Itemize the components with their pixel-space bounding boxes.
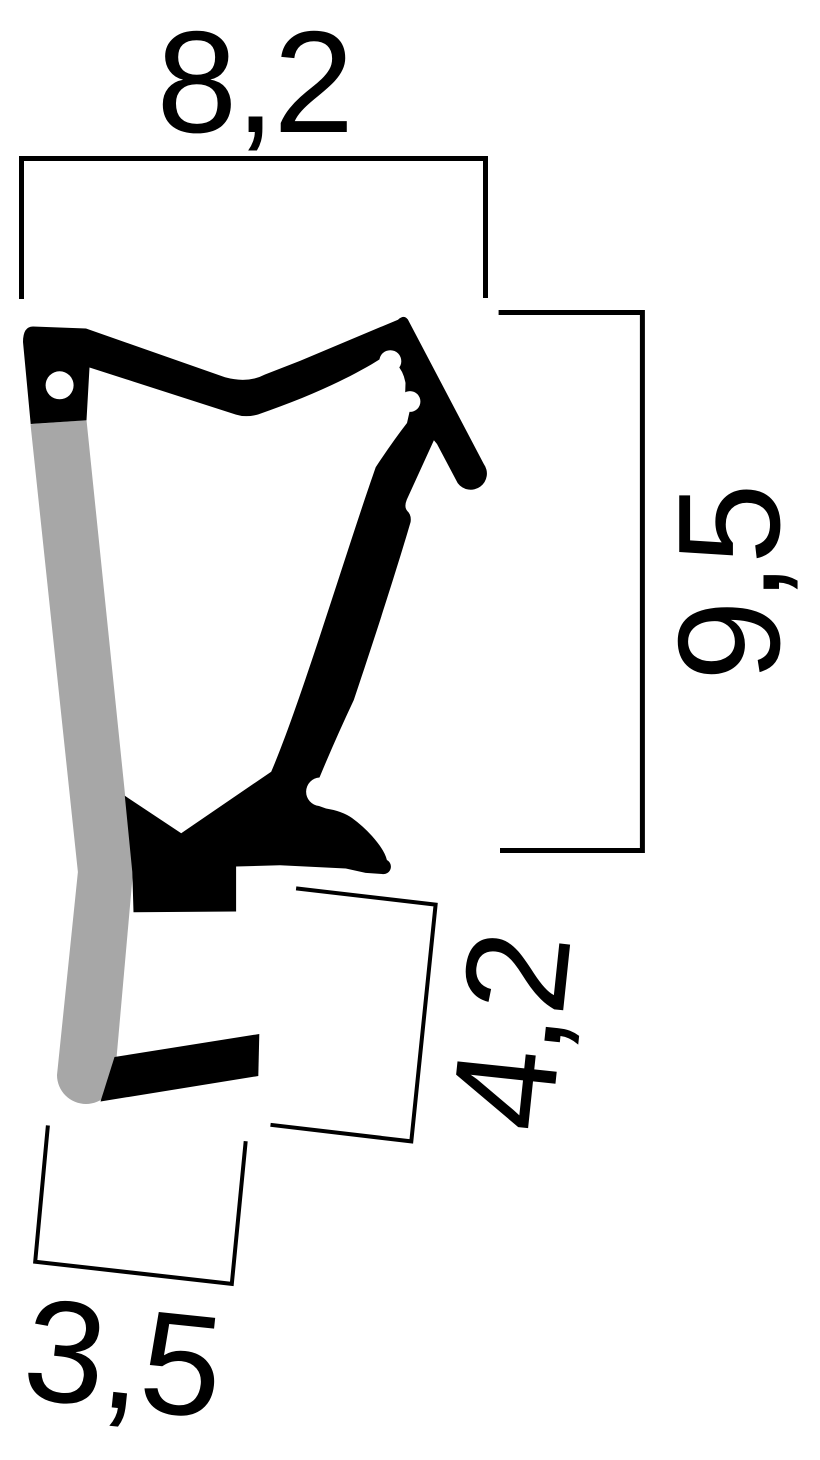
svg-text:3,5: 3,5 xyxy=(17,1267,228,1449)
svg-text:9,5: 9,5 xyxy=(648,485,810,681)
svg-text:8,2: 8,2 xyxy=(157,1,353,163)
svg-text:4,2: 4,2 xyxy=(420,926,602,1137)
